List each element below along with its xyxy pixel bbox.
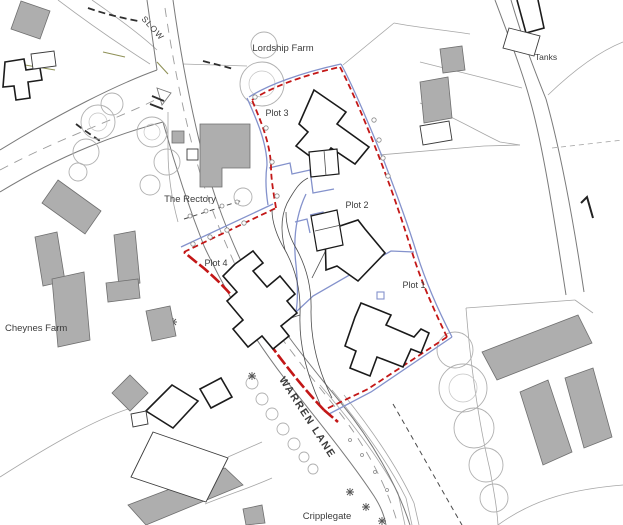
barn-north-small — [440, 46, 465, 73]
field-lines — [0, 0, 623, 525]
label-plot-1: Plot 1 — [402, 280, 425, 290]
label-plot-4: Plot 4 — [204, 258, 227, 268]
plot1-house — [345, 303, 429, 376]
label-the-rectory: The Rectory — [164, 194, 216, 205]
label-plot-2: Plot 2 — [345, 200, 368, 210]
label-tanks: Tanks — [535, 52, 557, 62]
labels: SLOW Lordship Farm Tanks Plot 3 The Rect… — [5, 14, 557, 522]
plot4-house — [223, 251, 297, 349]
label-lordship-farm: Lordship Farm — [252, 43, 313, 54]
farmyard-barns-south-east — [482, 315, 612, 465]
cheynes-farm-buildings — [35, 180, 176, 347]
existing-buildings — [11, 1, 612, 525]
outline-buildings — [3, 0, 544, 502]
label-plot-3: Plot 3 — [265, 108, 288, 118]
building-top-left — [11, 1, 50, 39]
label-cheynes-farm: Cheynes Farm — [5, 323, 67, 334]
barn-north — [420, 77, 452, 123]
site-plan-map: SLOW Lordship Farm Tanks Plot 3 The Rect… — [0, 0, 623, 525]
proposed-houses — [223, 90, 429, 404]
rectory-building — [172, 124, 250, 187]
label-cripplegate: Cripplegate — [303, 511, 352, 522]
roads — [0, 0, 623, 525]
